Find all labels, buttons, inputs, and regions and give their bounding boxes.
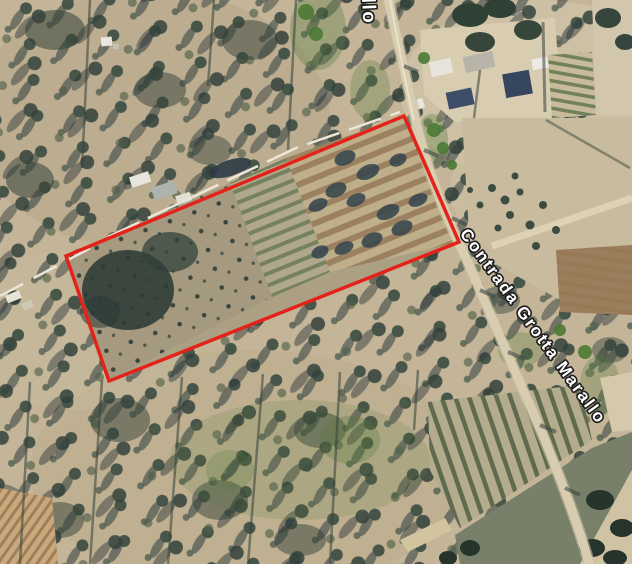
aerial-imagery: Contrada Grotta Marallo llo bbox=[0, 0, 632, 564]
ploughed-plot bbox=[556, 245, 632, 315]
garden-plot bbox=[548, 52, 596, 118]
solar-panel-array bbox=[502, 70, 533, 98]
bottom-left-plot bbox=[0, 488, 58, 564]
road-label-partial: llo bbox=[357, 0, 379, 25]
satellite-map: Contrada Grotta Marallo llo bbox=[0, 0, 632, 564]
